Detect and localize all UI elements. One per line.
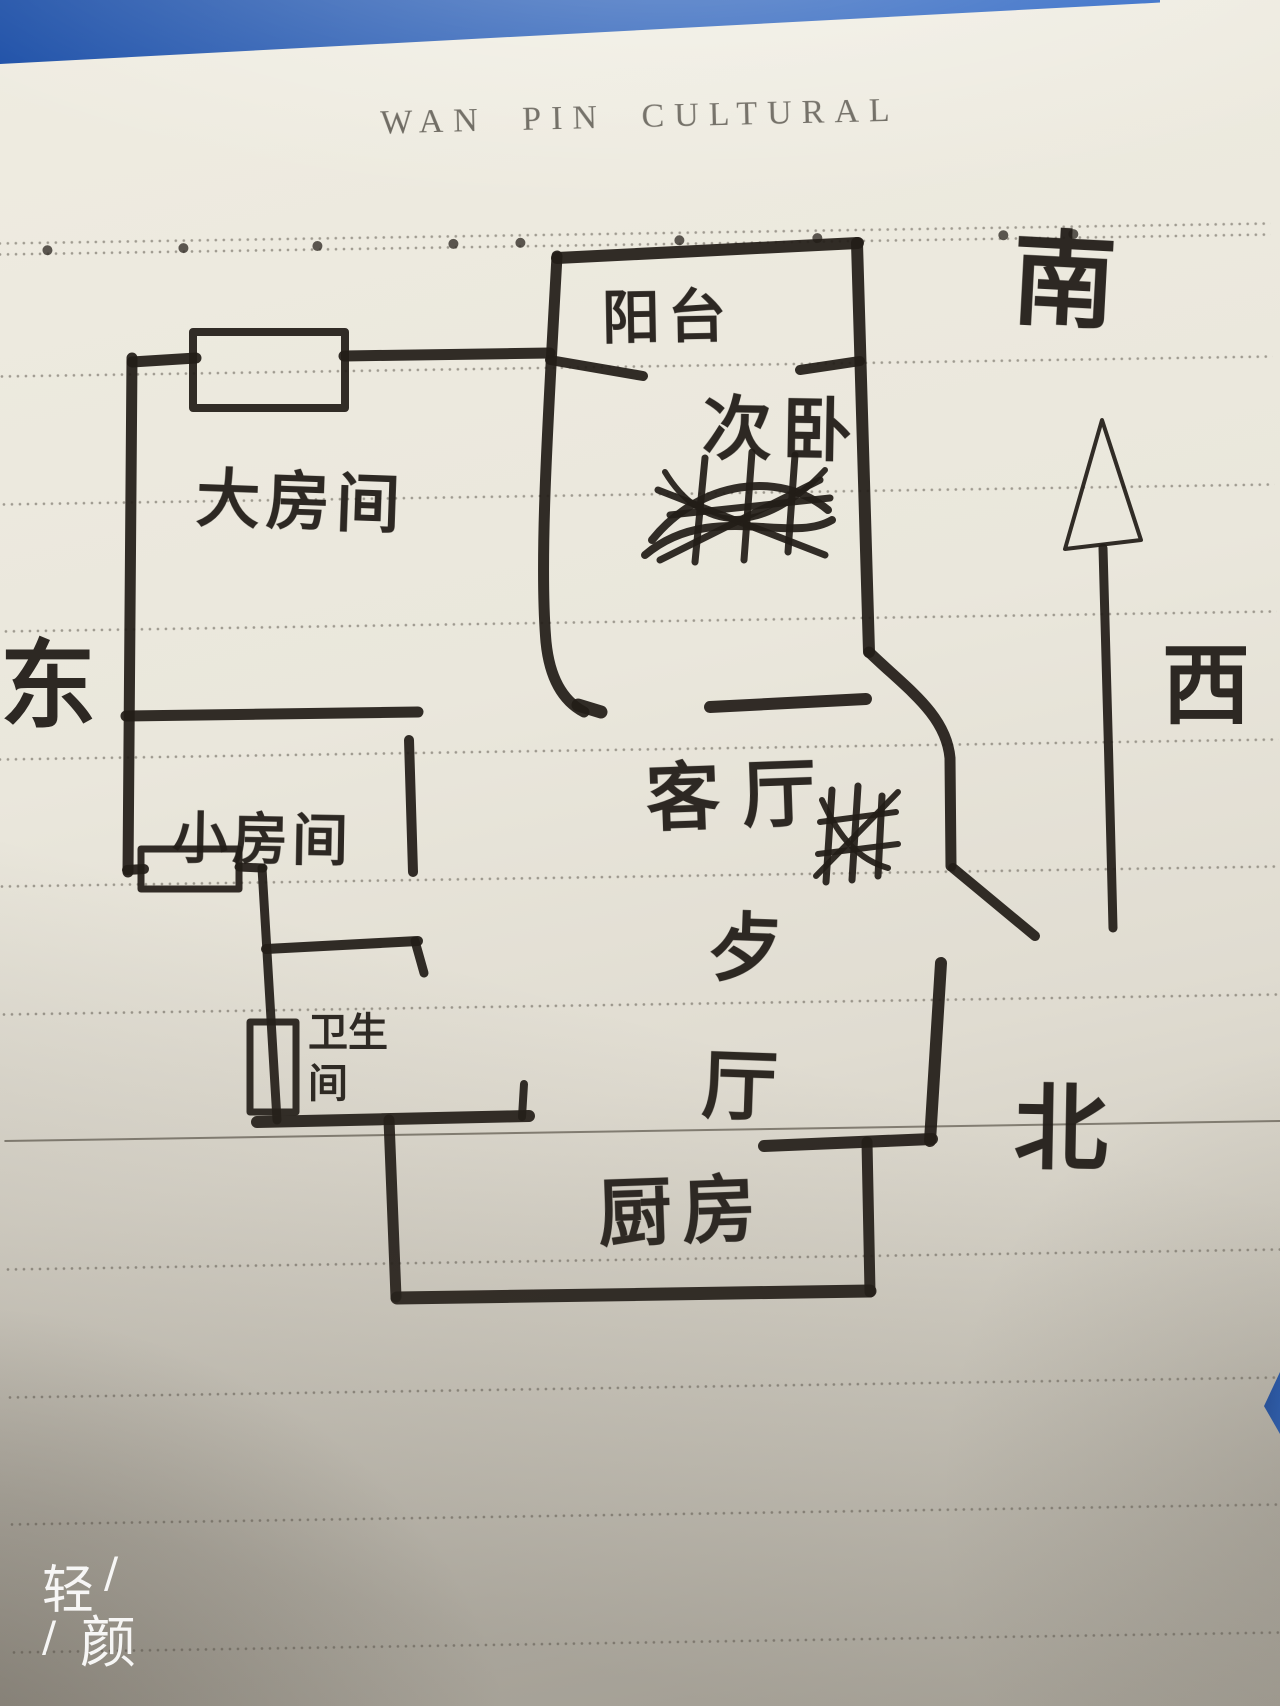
wall-segment: [344, 353, 550, 356]
window-symbols: [141, 332, 345, 1112]
wall-segment: [389, 1120, 396, 1297]
room-label-dining-room: 歺厅: [699, 879, 799, 1159]
wall-segment: [266, 941, 418, 949]
compass-north: 北: [1013, 1077, 1109, 1182]
wall-segment: [128, 358, 132, 872]
room-label-second-bedroom: 次卧: [701, 391, 862, 471]
wall-segment: [930, 963, 941, 1141]
room-label-small-room: 小房间: [171, 808, 352, 873]
compass-west: 西: [1162, 638, 1250, 735]
wall-segment: [132, 358, 196, 362]
window-symbol: [193, 332, 345, 408]
wall-segment: [415, 941, 424, 973]
compass-east: 东: [0, 634, 96, 740]
wall-segment: [800, 361, 860, 370]
camera-watermark: 轻 / / 颜: [36, 1540, 166, 1680]
notebook-page-photo: WAN PIN CULTURAL: [0, 0, 1280, 1706]
wall-segment: [409, 740, 413, 872]
watermark-slash: /: [42, 1612, 56, 1661]
north-arrow: [1065, 420, 1141, 928]
arrow-shaft: [1103, 548, 1113, 928]
room-label-bathroom: 卫生间: [308, 1008, 404, 1110]
wall-segment: [710, 699, 866, 707]
wall-segment: [522, 1084, 524, 1117]
room-label-big-room: 大房间: [195, 464, 407, 542]
room-label-balcony: 阳台: [601, 285, 734, 351]
room-label-living-room: 客厅: [645, 753, 840, 841]
door-swing: [953, 868, 1035, 936]
arrow-head: [1065, 420, 1141, 549]
wall-segment: [126, 712, 418, 716]
wall-segment: [262, 868, 277, 1120]
room-label-kitchen: 厨房: [597, 1169, 768, 1256]
wall-segment: [557, 243, 858, 258]
wall-segment: [544, 256, 585, 712]
wall-segment: [397, 1291, 870, 1298]
watermark-slash: /: [104, 1548, 118, 1597]
compass-south: 南: [1009, 221, 1119, 341]
wall-segment: [550, 360, 643, 376]
door-leaf-line: [953, 868, 1035, 936]
wall-segment: [867, 1142, 870, 1292]
watermark-char: 颜: [80, 1598, 136, 1679]
wall-segment: [578, 705, 601, 712]
